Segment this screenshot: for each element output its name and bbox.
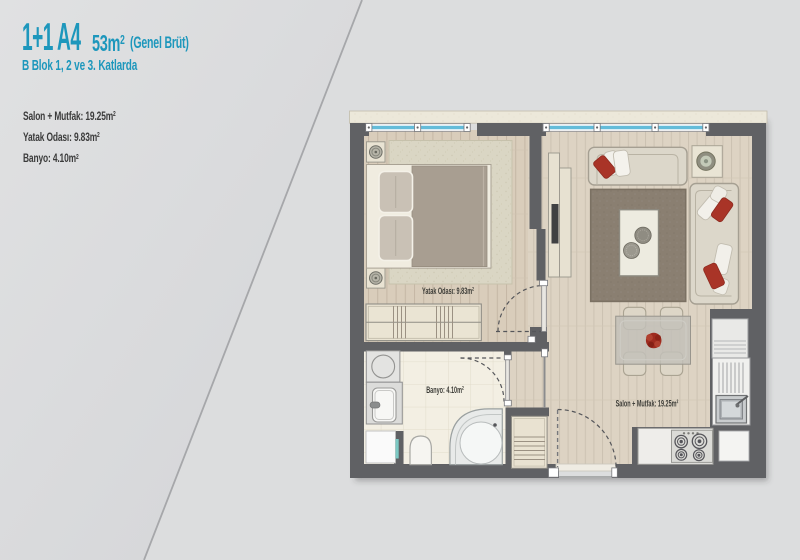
svg-text:Salon + Mutfak: 19.25m²: Salon + Mutfak: 19.25m²	[616, 398, 679, 409]
svg-text:Yatak Odası: 9.83m²: Yatak Odası: 9.83m²	[422, 285, 474, 296]
svg-text:Banyo: 4.10m²: Banyo: 4.10m²	[426, 384, 464, 395]
